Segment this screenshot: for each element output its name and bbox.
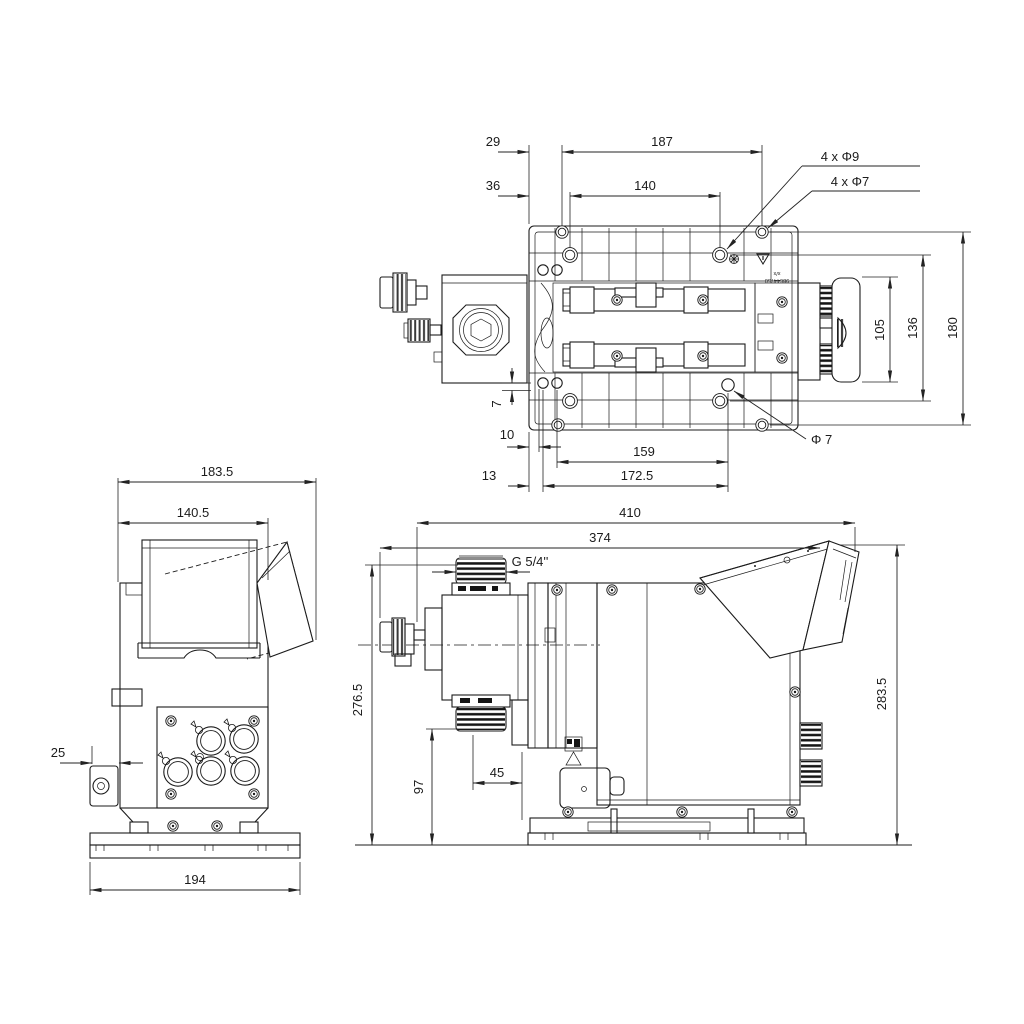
wall-bracket: [90, 766, 118, 806]
base-front: [90, 808, 300, 858]
side-view: 410 374 G 5/4'' 276.5 97 45 283.5: [350, 505, 912, 845]
type-label: x/x: [773, 270, 780, 276]
control-panel-front: [138, 540, 313, 659]
impeller-icon: [730, 255, 739, 264]
dim-7: 7: [489, 400, 504, 407]
dim-172_5: 172.5: [621, 468, 654, 483]
dim-283_5: 283.5: [874, 678, 889, 711]
dim-29: 29: [486, 134, 500, 149]
warning-triangle-icon: [757, 254, 769, 264]
hole-phi9: [713, 394, 728, 409]
dim-97: 97: [411, 780, 426, 794]
hole-phi7: [556, 226, 568, 238]
hole-phi7: [552, 419, 564, 431]
dim-45: 45: [490, 765, 504, 780]
connector-socket: [158, 752, 192, 786]
dim-183_5: 183.5: [201, 464, 234, 479]
front-view: 183.5 140.5 25 194: [51, 464, 316, 895]
dim-276_5: 276.5: [350, 684, 365, 717]
connector-socket: [225, 751, 259, 785]
label-phi7: Φ 7: [811, 432, 832, 447]
panel-tilt-flap: [257, 542, 313, 657]
drain-box: [560, 768, 610, 808]
dim-105: 105: [872, 319, 887, 341]
dim-140_5: 140.5: [177, 505, 210, 520]
connector-panel: [157, 707, 268, 808]
dim-374: 374: [589, 530, 611, 545]
adjustment-knob-top: [798, 278, 860, 382]
dim-187: 187: [651, 134, 673, 149]
hole-phi9: [563, 394, 578, 409]
warning-triangle-icon: [566, 752, 581, 765]
cable-gland-top: [380, 273, 441, 342]
connector-socket: [191, 721, 225, 755]
hole-phi7: [756, 226, 768, 238]
dim-13: 13: [482, 468, 496, 483]
hole-phi9: [563, 248, 578, 263]
base-side: [528, 807, 806, 845]
dim-10: 10: [500, 427, 514, 442]
dosing-head: [442, 556, 528, 745]
motor-barrel: [528, 583, 597, 748]
dim-410: 410: [619, 505, 641, 520]
dim-36: 36: [486, 178, 500, 193]
dimensional-drawing-page: x/x 98644750: [0, 0, 1024, 1024]
label-thread: G 5/4'': [512, 554, 549, 569]
bottom-view: x/x 98644750: [380, 134, 971, 492]
pump-housing-side: [552, 541, 859, 808]
dim-25: 25: [51, 745, 65, 760]
label-4x-phi9: 4 x Φ9: [821, 149, 860, 164]
connector-socket: [191, 751, 225, 785]
part-number-label: 98644750: [765, 277, 789, 283]
technical-drawing: x/x 98644750: [0, 0, 1024, 1024]
hole-phi9: [713, 248, 728, 263]
dim-159: 159: [633, 444, 655, 459]
control-panel-side: [700, 541, 859, 658]
dim-180: 180: [945, 317, 960, 339]
cable-gland-side: [380, 618, 425, 666]
dim-194: 194: [184, 872, 206, 887]
motor-housing-top: [434, 275, 527, 383]
mounting-plate: x/x 98644750: [529, 226, 798, 431]
dim-140: 140: [634, 178, 656, 193]
dim-136: 136: [905, 317, 920, 339]
motor-end-cap: [425, 608, 442, 670]
hole-phi7: [756, 419, 768, 431]
label-4x-phi7: 4 x Φ7: [831, 174, 870, 189]
